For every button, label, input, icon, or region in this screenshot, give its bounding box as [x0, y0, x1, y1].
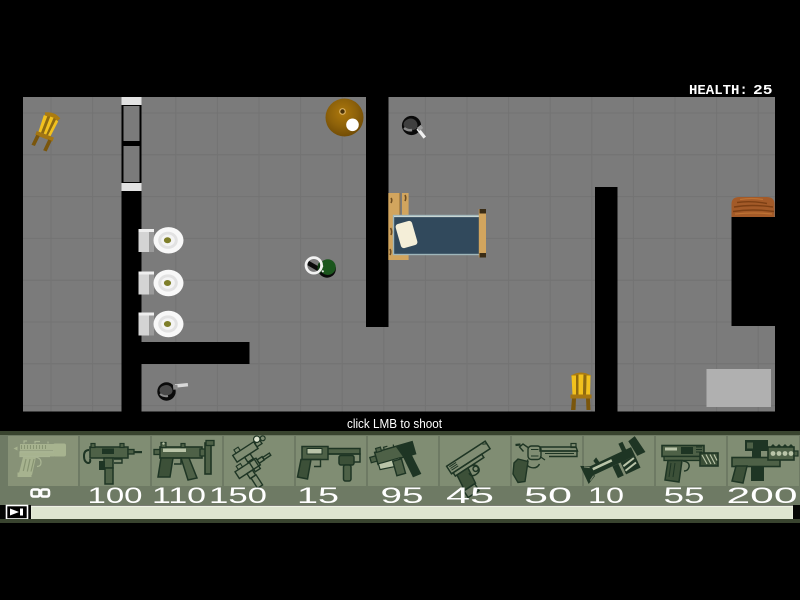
svg-text:10: 10 — [588, 483, 624, 508]
svg-text:150: 150 — [209, 483, 267, 508]
svg-text:15: 15 — [297, 483, 339, 508]
svg-text:45: 45 — [446, 483, 494, 508]
svg-text:200: 200 — [727, 483, 798, 508]
svg-text:click LMB to shoot: click LMB to shoot — [347, 416, 442, 431]
svg-text:25: 25 — [753, 83, 773, 99]
svg-text:55: 55 — [664, 483, 705, 508]
svg-text:50: 50 — [524, 483, 572, 508]
svg-text:95: 95 — [381, 483, 424, 508]
svg-text:110: 110 — [152, 483, 206, 508]
svg-text:HEALTH:: HEALTH: — [689, 83, 748, 99]
svg-text:100: 100 — [88, 483, 143, 508]
